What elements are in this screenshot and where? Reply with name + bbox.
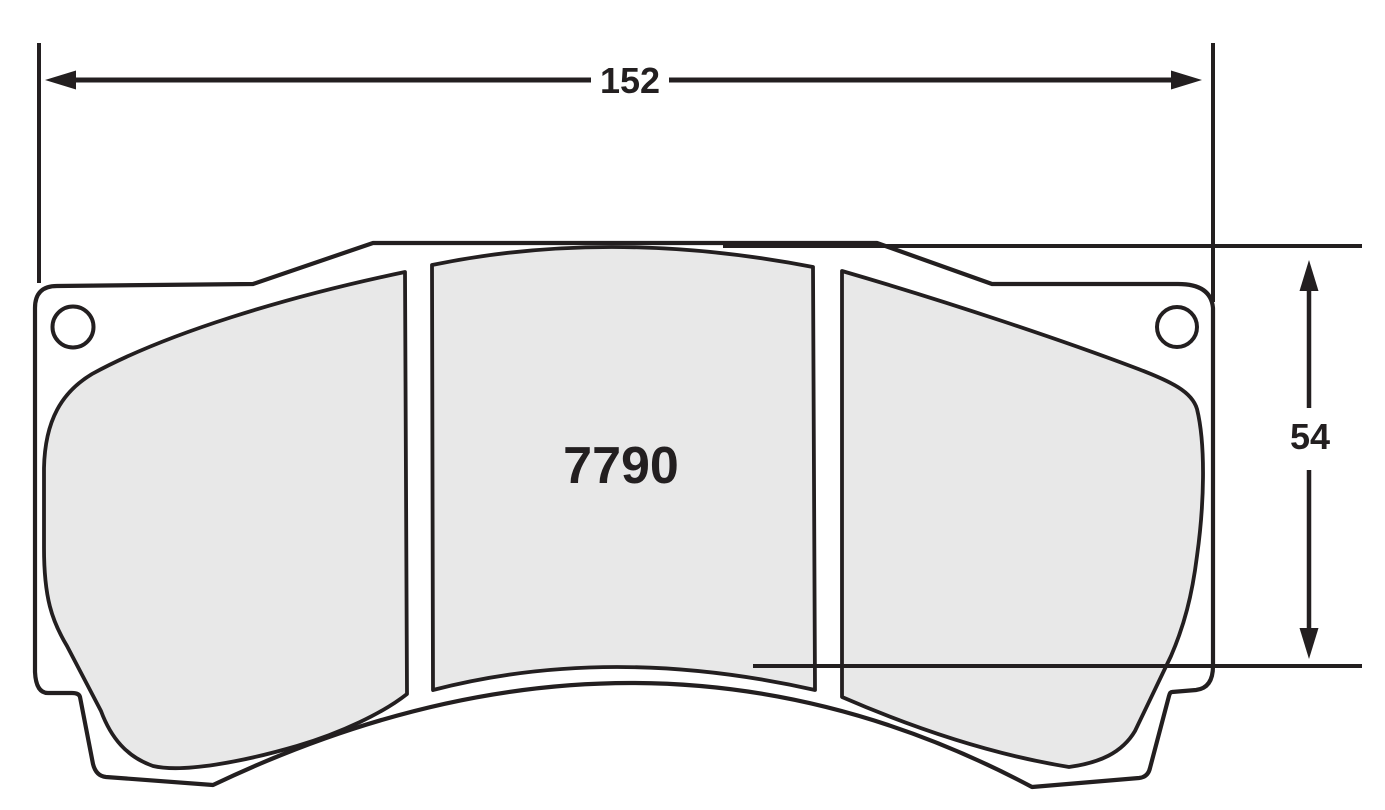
width-arrow-right-icon xyxy=(1171,71,1202,90)
mounting-hole-right xyxy=(1157,307,1197,347)
height-dimension-label: 54 xyxy=(1290,416,1330,457)
mounting-hole-left xyxy=(53,307,94,348)
width-arrow-left-icon xyxy=(45,71,76,90)
height-arrow-down-icon xyxy=(1300,628,1319,659)
drawing-canvas: 152 54 7790 xyxy=(0,0,1385,810)
height-arrow-up-icon xyxy=(1300,260,1319,291)
width-dimension-label: 152 xyxy=(600,60,660,101)
part-number-label: 7790 xyxy=(563,437,679,495)
brake-pad-technical-drawing: 152 54 7790 xyxy=(0,0,1385,810)
